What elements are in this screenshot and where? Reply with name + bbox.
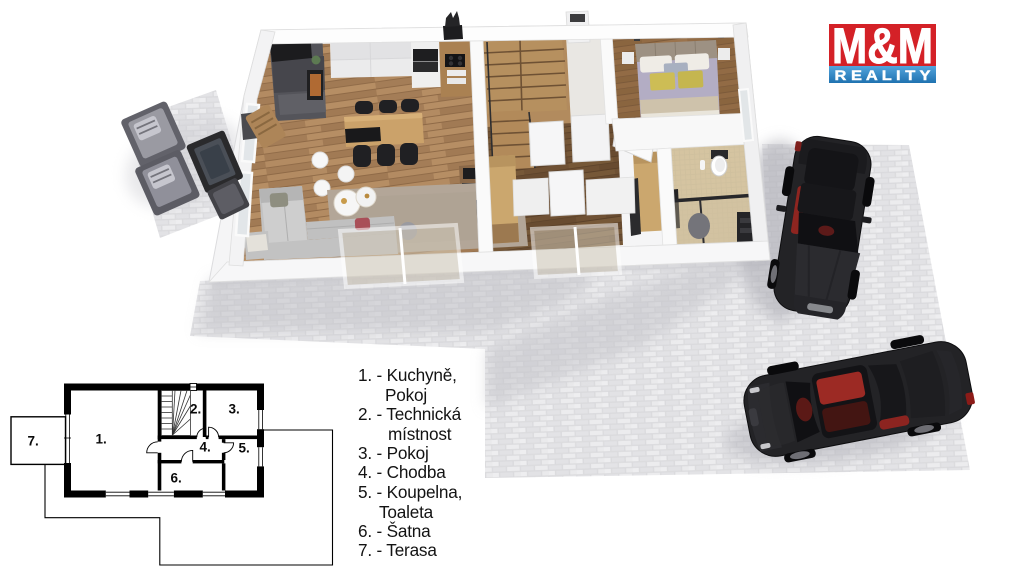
svg-text:7.: 7.	[28, 434, 39, 449]
svg-text:místnost: místnost	[388, 424, 452, 444]
svg-text:Toaleta: Toaleta	[379, 502, 434, 522]
svg-text:2.: 2.	[190, 402, 201, 417]
svg-text:2. - Technická: 2. - Technická	[358, 404, 462, 424]
svg-text:5. - Koupelna,: 5. - Koupelna,	[358, 482, 462, 502]
svg-text:1.: 1.	[96, 432, 107, 447]
svg-text:M&M: M&M	[832, 18, 933, 74]
svg-text:6.: 6.	[171, 471, 182, 486]
svg-text:1. - Kuchyně,: 1. - Kuchyně,	[358, 365, 457, 385]
svg-text:Pokoj: Pokoj	[385, 385, 427, 405]
svg-text:5.: 5.	[239, 441, 250, 456]
svg-text:3.: 3.	[229, 402, 240, 417]
svg-text:7. - Terasa: 7. - Terasa	[358, 540, 437, 560]
svg-text:3. - Pokoj: 3. - Pokoj	[358, 443, 429, 463]
svg-text:4.: 4.	[200, 440, 211, 455]
svg-text:4. - Chodba: 4. - Chodba	[358, 462, 446, 482]
svg-text:6. - Šatna: 6. - Šatna	[358, 521, 431, 541]
svg-text:R E A L I T Y: R E A L I T Y	[835, 68, 931, 83]
